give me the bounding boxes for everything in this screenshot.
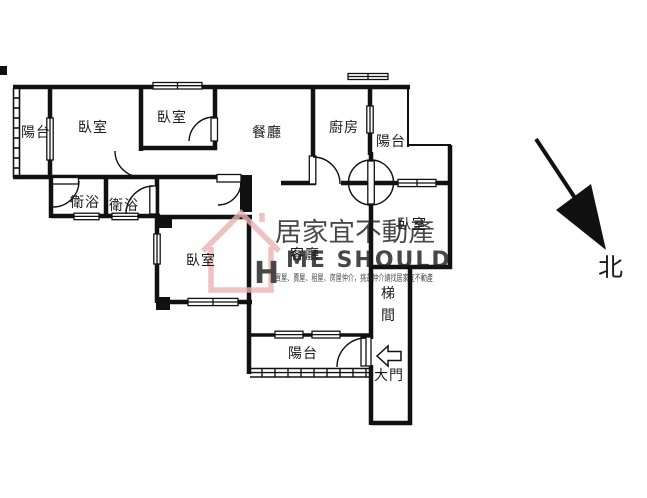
balcony-window-hatch-bottom xyxy=(250,369,371,378)
watermark-tagline: 買屋、賣屋、租屋、房屋仲介，挑選仲介請找居家宜不動產 xyxy=(275,272,433,284)
floor-plan-page: H 居家宜不動產 ME SHOULD 買屋、賣屋、租屋、房屋仲介，挑選仲介請找居… xyxy=(0,0,647,498)
kitchen-door-arc xyxy=(313,157,340,184)
label-kitchen: 廚房 xyxy=(329,119,359,136)
label-stairwell-2: 間 xyxy=(381,308,396,324)
label-bedroom-top: 臥室 xyxy=(157,109,187,126)
bedroom-tl-door-arc xyxy=(115,151,141,177)
label-bathroom-2: 衛浴 xyxy=(109,198,139,214)
label-balcony-left: 陽台 xyxy=(21,125,51,141)
label-main-door: 大門 xyxy=(374,368,404,384)
label-balcony-right: 陽台 xyxy=(376,134,406,150)
north-label: 北 xyxy=(598,253,623,282)
label-balcony-bottom: 陽台 xyxy=(288,346,318,362)
label-bedroom-mid: 臥室 xyxy=(186,252,216,269)
north-arrow-head xyxy=(556,184,606,250)
label-living: 客廳 xyxy=(290,246,320,263)
label-dining: 餐廳 xyxy=(252,124,282,141)
label-stairwell-1: 梯 xyxy=(381,286,396,302)
balcony-railing-walls xyxy=(408,87,451,147)
label-bedroom-right: 臥室 xyxy=(397,216,427,233)
label-bathroom-1: 衛浴 xyxy=(70,195,100,211)
balcony-window-hatch-left xyxy=(13,88,20,178)
entry-arrow-icon xyxy=(377,346,401,366)
label-bedroom-tl: 臥室 xyxy=(78,119,108,136)
living-door-arc xyxy=(218,182,241,205)
floor-plan-drawing: H 居家宜不動產 ME SHOULD 買屋、賣屋、租屋、房屋仲介，挑選仲介請找居… xyxy=(0,0,647,498)
bedroom-top-door-arc xyxy=(189,117,214,141)
north-arrow: 北 xyxy=(536,139,623,282)
